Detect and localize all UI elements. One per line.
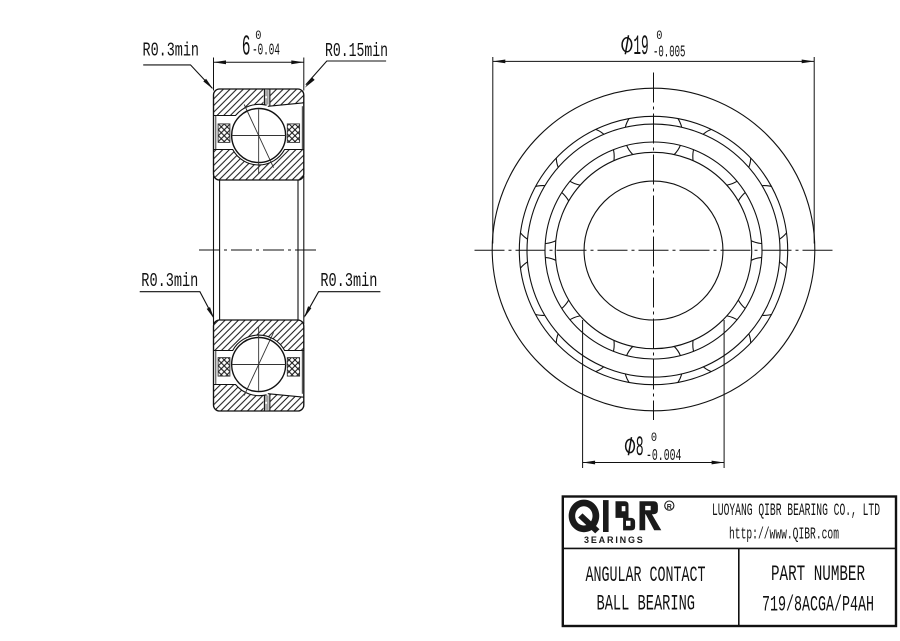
svg-text:BALL BEARING: BALL BEARING [597, 591, 696, 617]
svg-text:http://www.QIBR.com: http://www.QIBR.com [729, 525, 839, 544]
svg-text:PART NUMBER: PART NUMBER [771, 561, 865, 587]
svg-text:R0.3min: R0.3min [141, 270, 198, 292]
svg-text:3EARINGS: 3EARINGS [584, 535, 645, 545]
svg-text:19: 19 [633, 32, 648, 63]
svg-text:ANGULAR CONTACT: ANGULAR CONTACT [586, 562, 706, 588]
svg-text:R0.3min: R0.3min [320, 270, 377, 292]
svg-text:R0.15min: R0.15min [325, 40, 388, 62]
svg-text:0: 0 [656, 28, 662, 43]
svg-text:LUOYANG QIBR BEARING CO., LTD: LUOYANG QIBR BEARING CO., LTD [712, 502, 880, 521]
svg-text:8: 8 [636, 433, 644, 464]
svg-text:-0.04: -0.04 [252, 41, 280, 60]
svg-text:-0.005: -0.005 [653, 42, 685, 61]
svg-text:0: 0 [651, 430, 657, 445]
svg-text:-0.004: -0.004 [646, 446, 681, 465]
svg-text:R0.3min: R0.3min [143, 40, 200, 62]
svg-text:R: R [667, 504, 672, 511]
svg-text:719/8ACGA/P4AH: 719/8ACGA/P4AH [762, 592, 874, 618]
svg-text:6: 6 [242, 31, 251, 64]
